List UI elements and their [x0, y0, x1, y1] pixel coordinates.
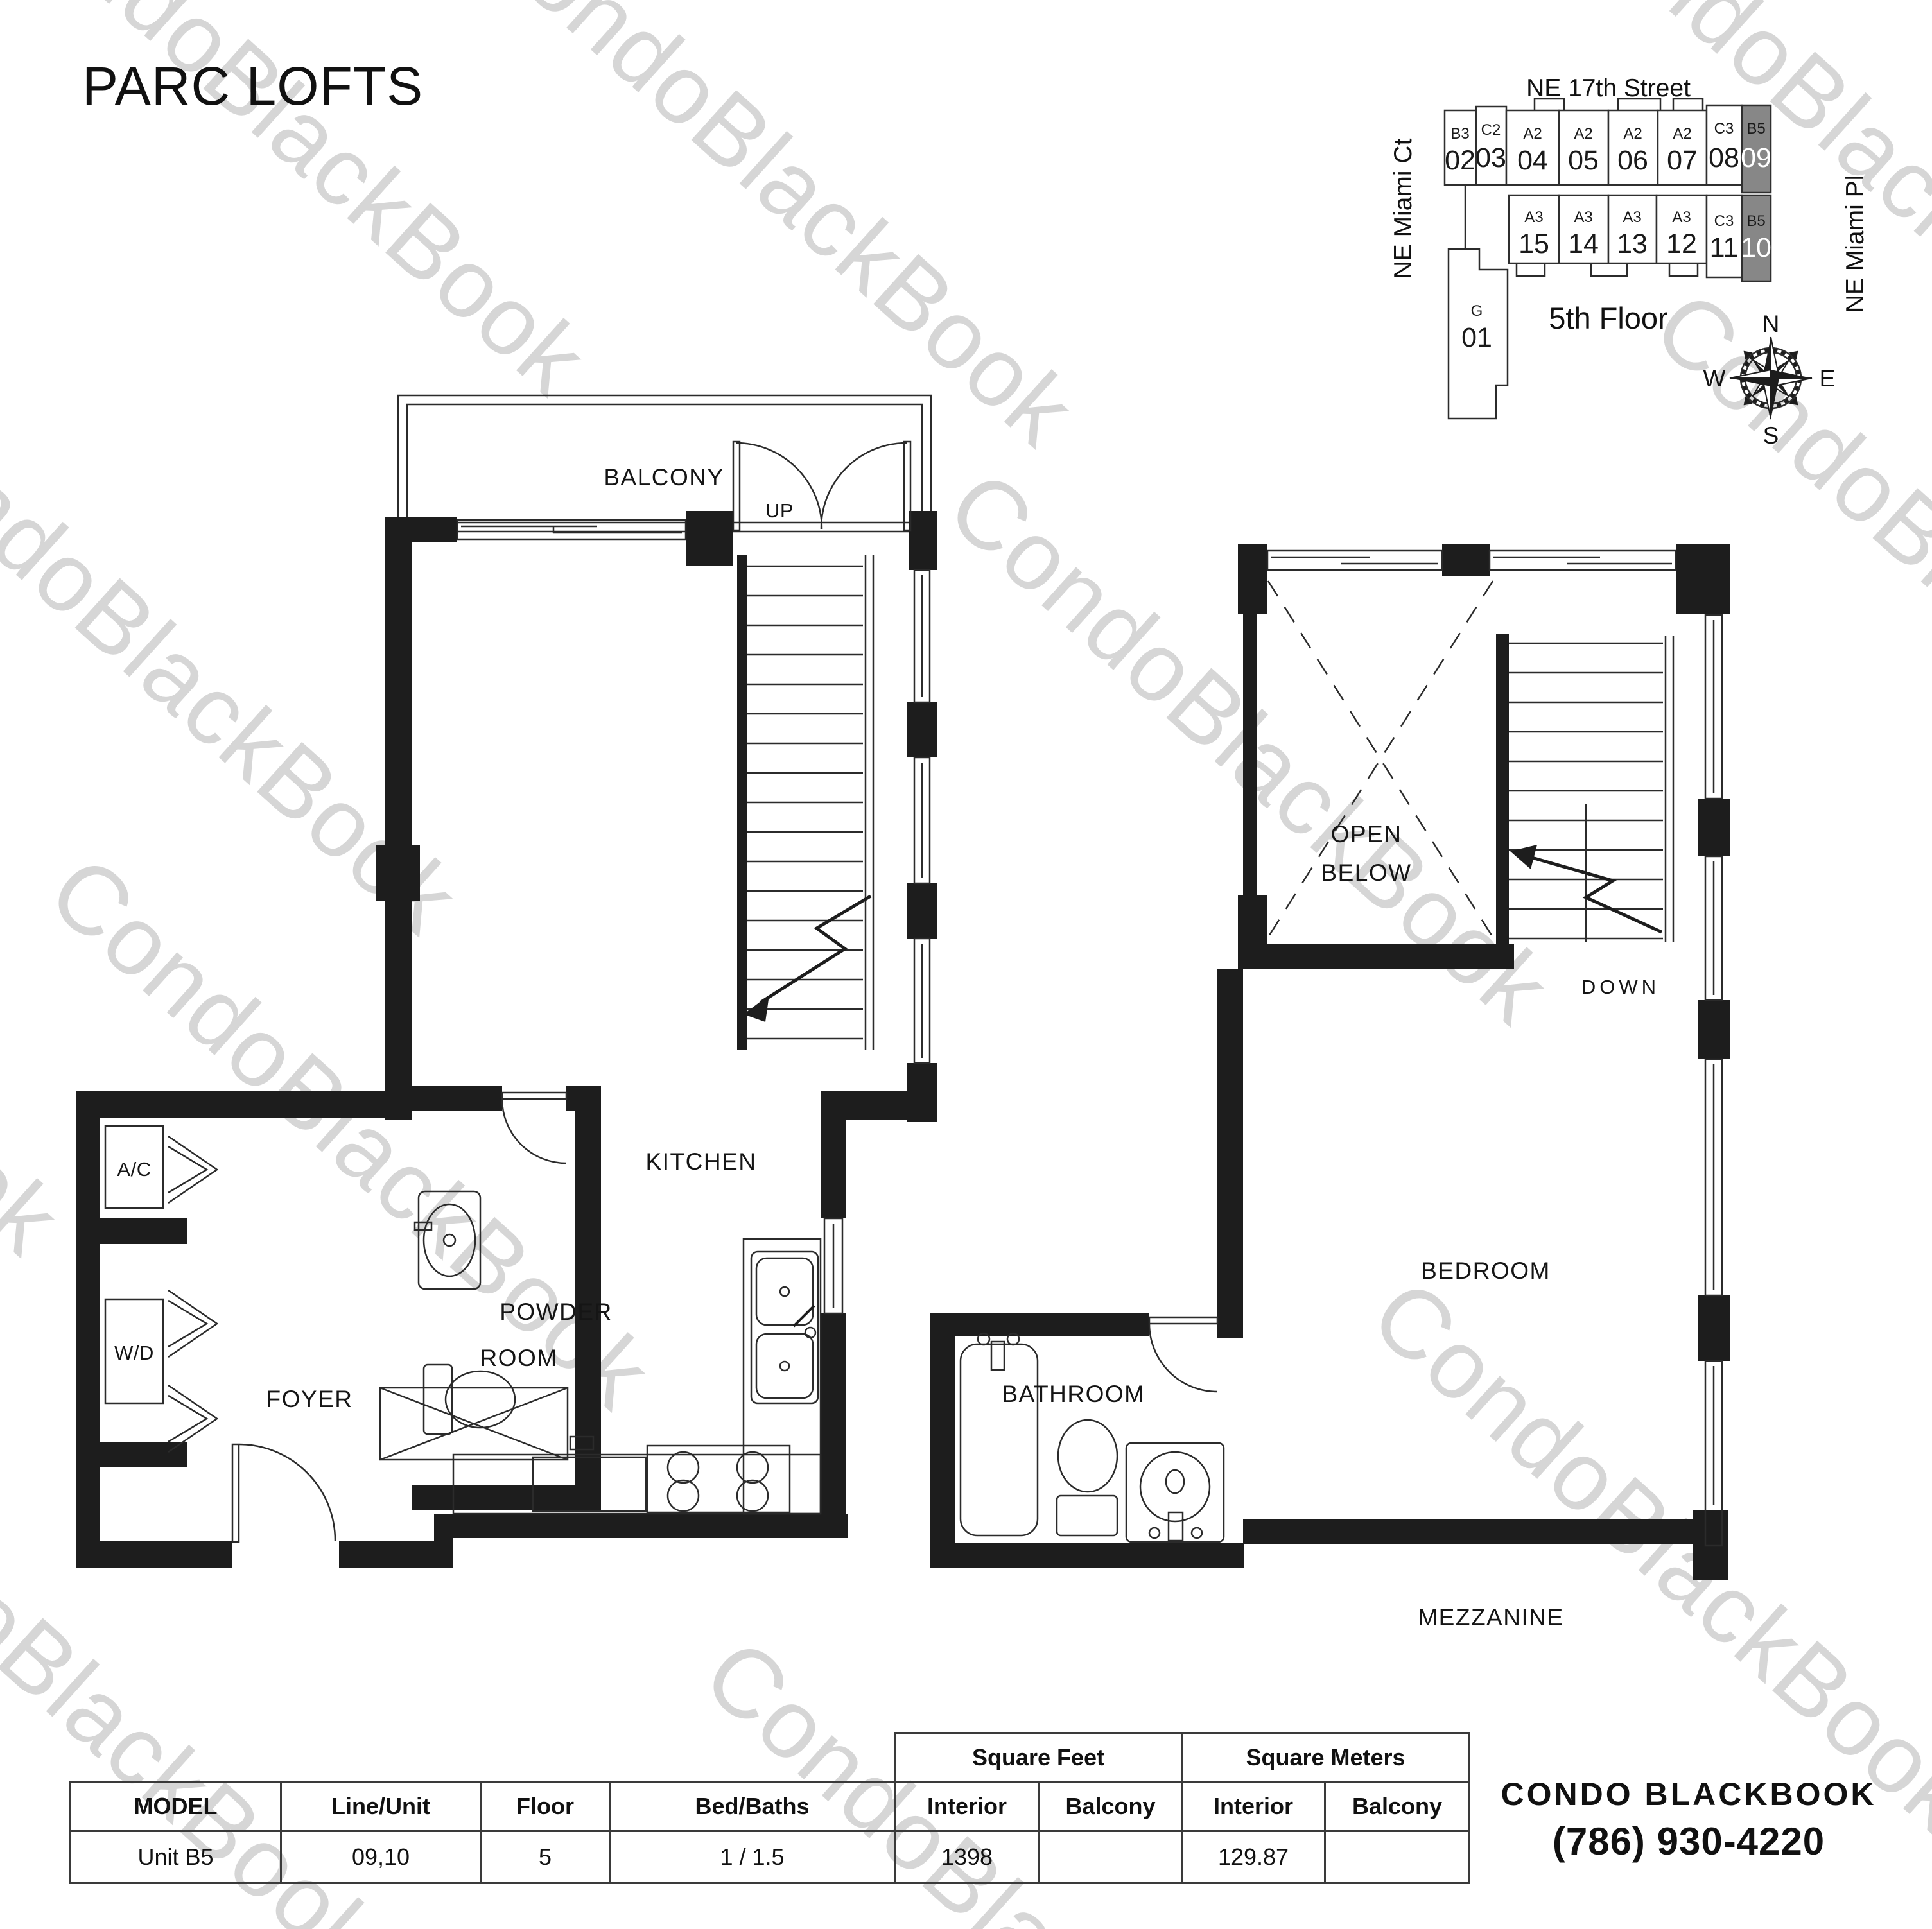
- value-line-unit: 09,10: [281, 1831, 481, 1883]
- unit-type: A2: [1673, 125, 1691, 143]
- unit-number: 10: [1741, 232, 1771, 263]
- column-header-line-unit: Line/Unit: [281, 1782, 481, 1831]
- spec-table: Square Feet Square Meters MODEL Line/Uni…: [69, 1732, 1470, 1884]
- column-header-floor: Floor: [481, 1782, 610, 1831]
- stairs-down: [1509, 636, 1673, 942]
- unit-number: 15: [1519, 229, 1549, 259]
- key-plan-unit: C3 08: [1707, 105, 1742, 185]
- unit-number: 12: [1666, 229, 1697, 259]
- unit-number: 02: [1445, 145, 1475, 176]
- group-header-square-feet: Square Feet: [895, 1733, 1182, 1782]
- bathroom-fixtures: [961, 1317, 1224, 1542]
- unit-number: 14: [1568, 229, 1599, 259]
- floor-plan-mezzanine-level: OPEN BELOW DOWN BEDROOM BATHROOM MEZZANI…: [930, 544, 1730, 1631]
- unit-number: 09: [1741, 143, 1771, 173]
- unit-number: 08: [1709, 143, 1739, 173]
- value-floor: 5: [481, 1831, 610, 1883]
- up-label: UP: [765, 499, 794, 522]
- ac-label: A/C: [117, 1158, 151, 1181]
- unit-type: C3: [1714, 212, 1734, 230]
- unit-type: C3: [1714, 120, 1734, 137]
- key-plan-unit: A3 12: [1657, 195, 1707, 263]
- brand-phone: (786) 930-4220: [1464, 1819, 1913, 1864]
- key-plan-unit: A3 15: [1509, 195, 1559, 263]
- key-plan-unit: A3 13: [1608, 195, 1657, 263]
- windows: [457, 520, 930, 1313]
- key-plan-garage: G 01: [1449, 186, 1508, 419]
- wd-label: W/D: [114, 1342, 154, 1364]
- kitchen-fixtures: [453, 1239, 821, 1514]
- group-header-square-meters: Square Meters: [1182, 1733, 1470, 1782]
- floor-label: 5th Floor: [1549, 301, 1667, 335]
- open-below-label-line2: BELOW: [1321, 860, 1411, 886]
- page-title: PARC LOFTS: [82, 55, 423, 117]
- unit-number: 07: [1667, 145, 1698, 176]
- entry-door: [232, 1444, 335, 1542]
- street-top-label: NE 17th Street: [1526, 74, 1691, 102]
- key-plan-unit: A2 07: [1658, 110, 1707, 185]
- key-plan-unit: A2 04: [1506, 110, 1559, 185]
- compass-rose-icon: N S W E: [1703, 311, 1836, 449]
- powder-room-label-line2: ROOM: [480, 1345, 557, 1371]
- key-plan-unit-highlighted: B5 10: [1741, 195, 1771, 281]
- unit-number: 06: [1617, 145, 1648, 176]
- unit-type: A3: [1574, 209, 1592, 226]
- key-plan-unit: C2 03: [1475, 107, 1506, 185]
- unit-type: A3: [1672, 209, 1691, 226]
- brand-footer: CONDO BLACKBOOK (786) 930-4220: [1464, 1776, 1913, 1864]
- column-header-balcony-sqm: Balcony: [1325, 1782, 1470, 1831]
- unit-number: 05: [1568, 145, 1599, 176]
- garage-number: 01: [1461, 322, 1492, 353]
- compass-south-label: S: [1763, 422, 1779, 449]
- powder-room-label-line1: POWDER: [500, 1299, 613, 1325]
- kitchen-label: KITCHEN: [646, 1148, 757, 1175]
- key-plan-unit-highlighted: B5 09: [1741, 105, 1771, 193]
- unit-type: A2: [1574, 125, 1592, 143]
- key-plan-unit: C3 11: [1707, 195, 1742, 277]
- unit-number: 11: [1710, 232, 1739, 263]
- street-right-label: NE Miami Pl: [1841, 175, 1869, 313]
- unit-number: 03: [1475, 143, 1506, 173]
- unit-type: A3: [1623, 209, 1641, 226]
- garage-type: G: [1471, 302, 1483, 320]
- foyer-label: FOYER: [266, 1386, 353, 1412]
- compass-east-label: E: [1820, 365, 1836, 392]
- bathroom-label: BATHROOM: [1002, 1381, 1145, 1407]
- column-header-model: MODEL: [71, 1782, 281, 1831]
- unit-type: B5: [1746, 212, 1765, 230]
- balcony-label: BALCONY: [604, 464, 724, 490]
- down-label: DOWN: [1581, 976, 1660, 998]
- key-plan: NE 17th Street NE Miami Ct NE Miami Pl 5…: [1389, 74, 1869, 449]
- key-plan-unit: B3 02: [1445, 110, 1476, 185]
- value-interior-sqft: 1398: [895, 1831, 1040, 1883]
- unit-number: 13: [1617, 229, 1648, 259]
- unit-type: B5: [1746, 120, 1765, 137]
- floor-plan-main-level: BALCONY UP POWDER ROOM A/C W/D FOYER KIT…: [76, 395, 937, 1568]
- unit-type: C2: [1481, 121, 1501, 139]
- key-plan-unit: A2 06: [1608, 110, 1658, 185]
- column-header-bed-baths: Bed/Baths: [610, 1782, 895, 1831]
- table-row: Unit B5 09,10 5 1 / 1.5 1398 129.87: [71, 1831, 1470, 1883]
- floor-plan-sheet: CondoBlackBook CondoBlackBook CondoBlack…: [0, 0, 1932, 1929]
- column-header-interior-sqft: Interior: [895, 1782, 1040, 1831]
- bedroom-label: BEDROOM: [1421, 1258, 1551, 1284]
- unit-type: A2: [1623, 125, 1642, 143]
- unit-type: B3: [1450, 125, 1469, 143]
- unit-type: A3: [1524, 209, 1543, 226]
- open-below-label-line1: OPEN: [1331, 821, 1402, 847]
- brand-name: CONDO BLACKBOOK: [1464, 1776, 1913, 1813]
- unit-type: A2: [1523, 125, 1542, 143]
- compass-west-label: W: [1703, 365, 1726, 392]
- column-header-interior-sqm: Interior: [1182, 1782, 1325, 1831]
- compass-north-label: N: [1762, 311, 1780, 337]
- value-balcony-sqm: [1325, 1831, 1470, 1883]
- value-interior-sqm: 129.87: [1182, 1831, 1325, 1883]
- powder-room-fixtures: [415, 1093, 566, 1434]
- walls: [930, 544, 1730, 1580]
- value-bed-baths: 1 / 1.5: [610, 1831, 895, 1883]
- value-model: Unit B5: [71, 1831, 281, 1883]
- mezzanine-label: MEZZANINE: [1418, 1604, 1563, 1631]
- street-left-label: NE Miami Ct: [1389, 138, 1417, 279]
- windows: [1267, 551, 1722, 1546]
- unit-number: 04: [1517, 145, 1548, 176]
- table-spacer: [71, 1733, 895, 1782]
- stairs-up: [737, 555, 873, 1050]
- key-plan-unit: A3 14: [1559, 195, 1608, 263]
- key-plan-unit: A2 05: [1559, 110, 1608, 185]
- value-balcony-sqft: [1040, 1831, 1182, 1883]
- french-doors: [733, 442, 910, 530]
- column-header-balcony-sqft: Balcony: [1040, 1782, 1182, 1831]
